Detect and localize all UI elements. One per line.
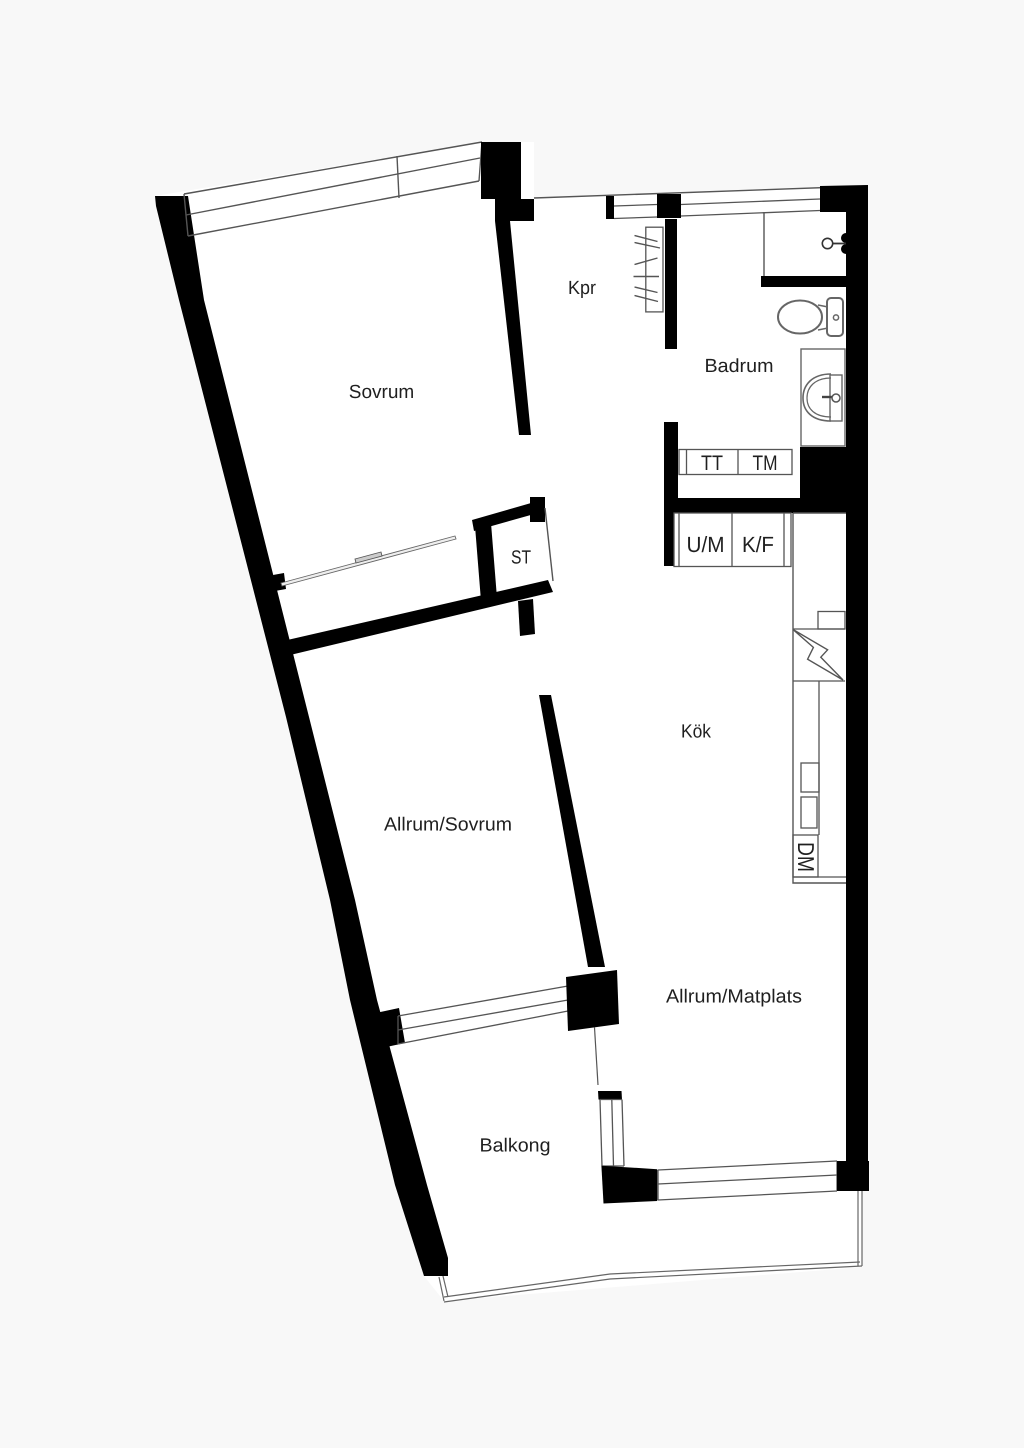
svg-text:Balkong: Balkong — [480, 1136, 551, 1157]
svg-text:ST: ST — [511, 548, 531, 569]
svg-text:K/F: K/F — [742, 532, 774, 557]
svg-text:Kök: Kök — [681, 722, 711, 743]
svg-text:Kpr: Kpr — [568, 278, 597, 299]
svg-text:Allrum/Matplats: Allrum/Matplats — [666, 987, 802, 1008]
svg-text:U/M: U/M — [687, 532, 725, 557]
svg-text:DM: DM — [793, 842, 819, 872]
svg-text:Allrum/Sovrum: Allrum/Sovrum — [384, 815, 512, 836]
svg-text:TM: TM — [753, 452, 778, 475]
svg-text:Sovrum: Sovrum — [349, 382, 414, 403]
svg-text:TT: TT — [701, 452, 723, 475]
svg-text:Badrum: Badrum — [705, 356, 774, 377]
